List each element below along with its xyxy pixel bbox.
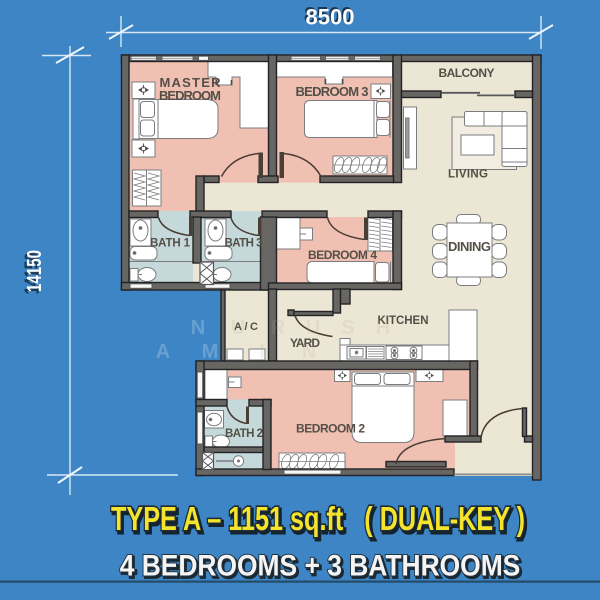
svg-text:BATH 1: BATH 1 bbox=[150, 238, 191, 250]
svg-text:DINING: DINING bbox=[448, 239, 491, 254]
svg-text:TYPE A – 1151 sq.ft ( DUAL-K: TYPE A – 1151 sq.ft ( DUAL-KEY ) bbox=[111, 501, 525, 538]
svg-text:U: U bbox=[306, 317, 320, 339]
svg-text:H: H bbox=[376, 317, 390, 339]
svg-text:N: N bbox=[191, 317, 205, 339]
svg-text:S: S bbox=[341, 317, 354, 339]
svg-text:BALCONY: BALCONY bbox=[439, 66, 495, 80]
svg-text:A: A bbox=[156, 341, 170, 363]
svg-text:BATH 3: BATH 3 bbox=[225, 238, 263, 250]
svg-text:M: M bbox=[202, 341, 219, 363]
svg-text:U: U bbox=[346, 341, 360, 363]
svg-text:BEDROOM 2: BEDROOM 2 bbox=[296, 422, 365, 436]
svg-text:BEDROOM: BEDROOM bbox=[159, 88, 221, 103]
svg-text:8500: 8500 bbox=[306, 5, 355, 30]
svg-text:LIVING: LIVING bbox=[448, 169, 488, 181]
svg-text:U: U bbox=[231, 317, 245, 339]
svg-text:R: R bbox=[271, 317, 286, 339]
svg-text:14150: 14150 bbox=[24, 250, 46, 292]
svg-text:4 BEDROOMS + 3 BATHROOMS: 4 BEDROOMS + 3 BATHROOMS bbox=[120, 548, 521, 582]
svg-text:BEDROOM 3: BEDROOM 3 bbox=[296, 84, 369, 99]
svg-text:BATH 2: BATH 2 bbox=[225, 428, 263, 440]
svg-text:BEDROOM 4: BEDROOM 4 bbox=[308, 248, 377, 262]
svg-text:I: I bbox=[259, 341, 265, 363]
svg-text:N: N bbox=[302, 341, 316, 363]
